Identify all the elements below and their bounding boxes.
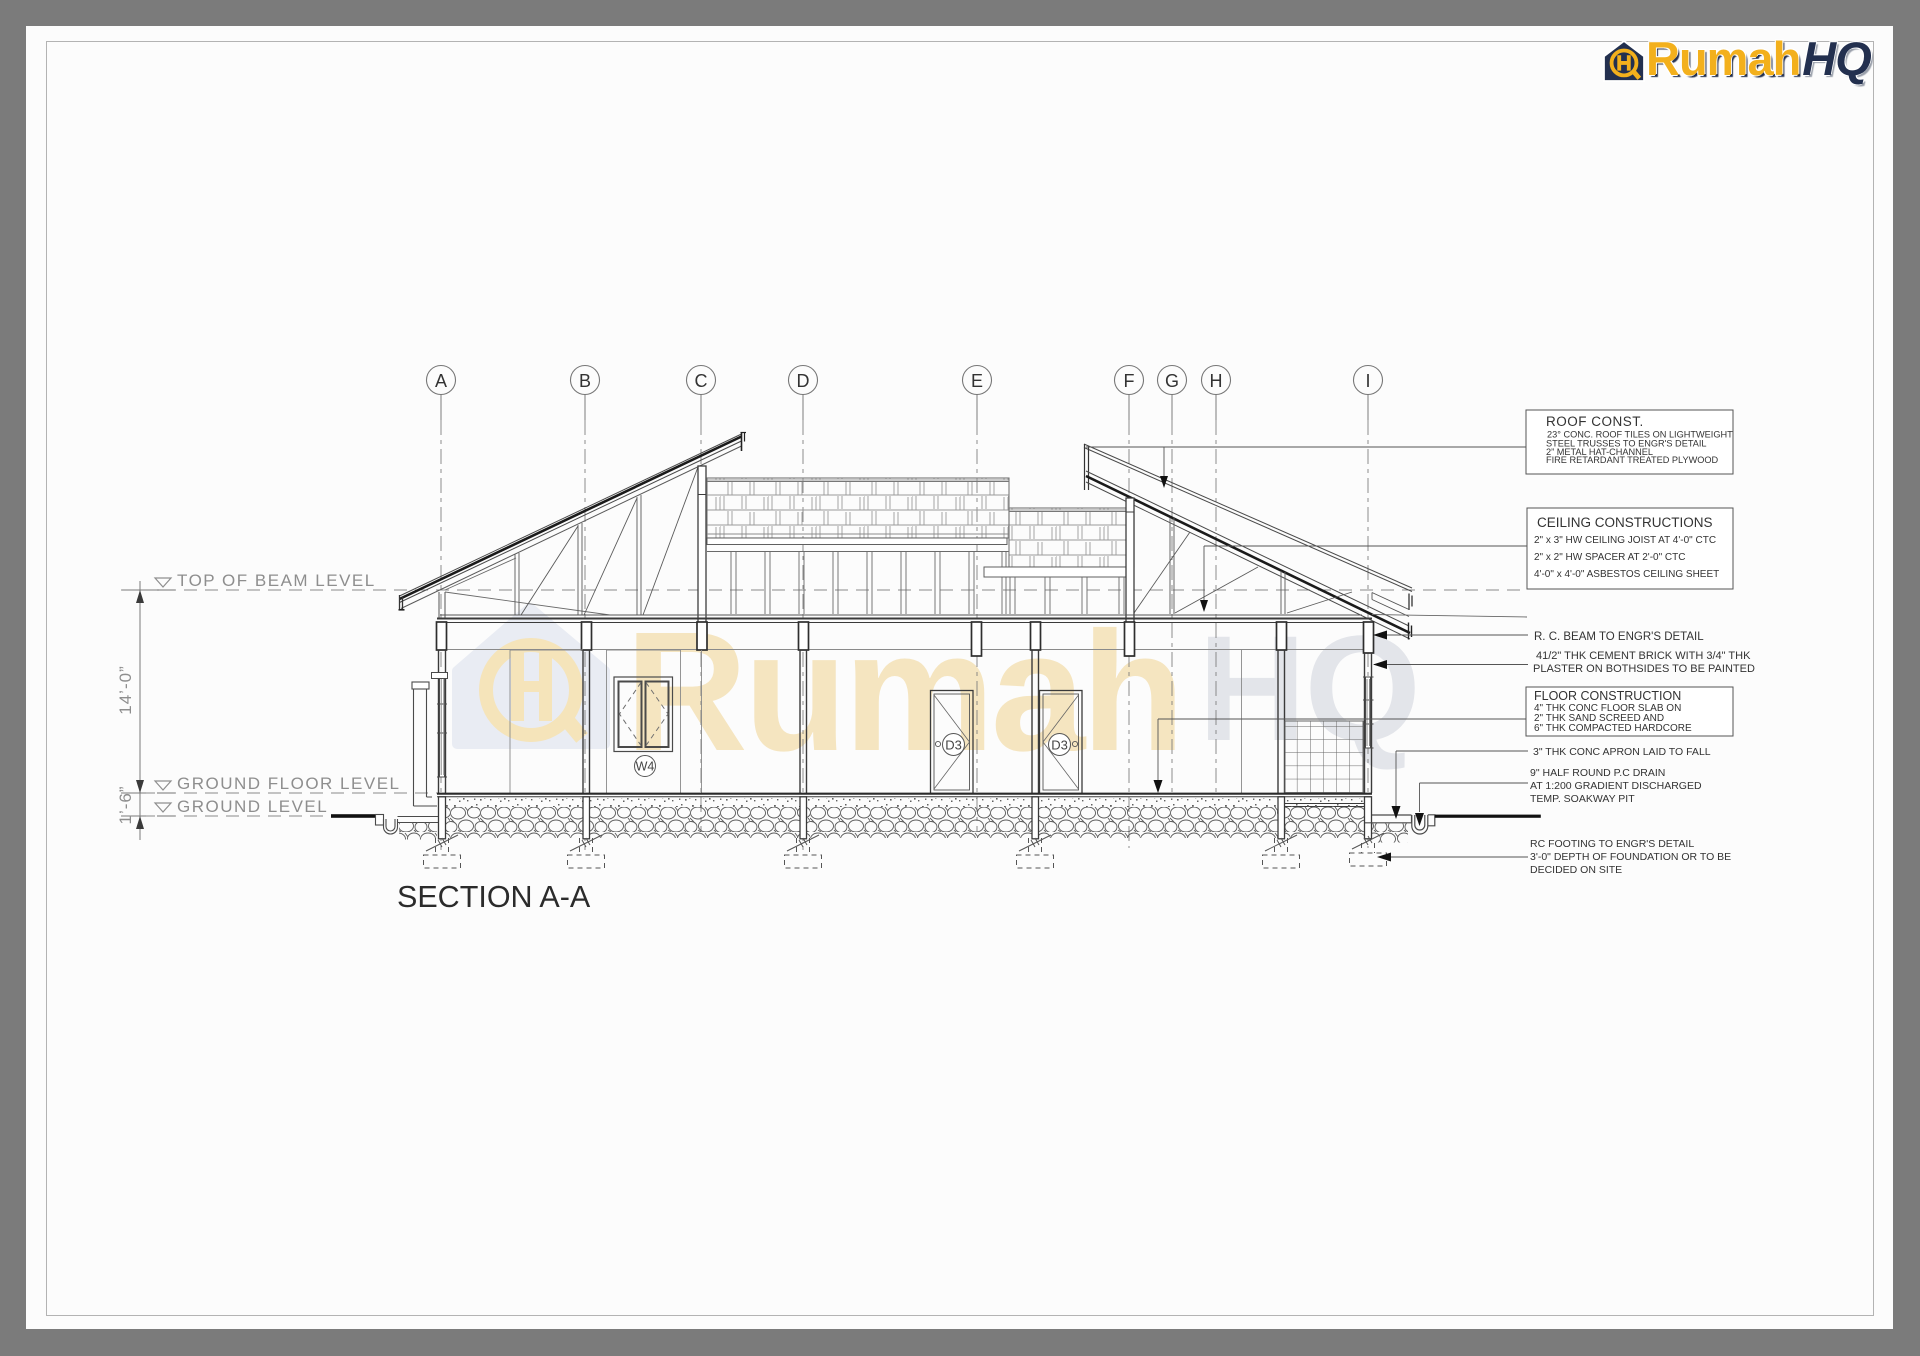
svg-text:D: D [797,371,810,391]
svg-text:CEILING CONSTRUCTIONS: CEILING CONSTRUCTIONS [1537,515,1713,530]
svg-text:6" THK COMPACTED HARDCORE: 6" THK COMPACTED HARDCORE [1534,723,1692,734]
svg-text:FIRE RETARDANT TREATED PLYWOOD: FIRE RETARDANT TREATED PLYWOOD [1546,455,1719,465]
svg-text:R. C. BEAM TO ENGR'S DETAIL: R. C. BEAM TO ENGR'S DETAIL [1534,631,1704,643]
svg-text:E: E [971,371,983,391]
svg-text:3" THK CONC APRON LAID TO FALL: 3" THK CONC APRON LAID TO FALL [1533,746,1711,758]
svg-text:F: F [1124,371,1135,391]
svg-text:W4: W4 [636,760,655,774]
svg-text:GROUND FLOOR LEVEL: GROUND FLOOR LEVEL [177,774,401,793]
svg-text:ROOF CONST.: ROOF CONST. [1546,414,1644,429]
svg-text:2" x 3" HW CEILING JOIST AT 4': 2" x 3" HW CEILING JOIST AT 4'-0" CTC [1534,535,1716,546]
svg-text:3'-0" DEPTH OF FOUNDATION OR T: 3'-0" DEPTH OF FOUNDATION OR TO BE [1530,851,1731,863]
svg-text:PLASTER ON BOTHSIDES TO BE PAI: PLASTER ON BOTHSIDES TO BE PAINTED [1533,663,1755,675]
svg-text:I: I [1365,371,1370,391]
svg-text:14’-0”: 14’-0” [116,665,135,714]
svg-text:FLOOR CONSTRUCTION: FLOOR CONSTRUCTION [1534,689,1681,703]
svg-text:A: A [435,371,447,391]
svg-text:41/2" THK CEMENT BRICK WITH 3/: 41/2" THK CEMENT BRICK WITH 3/4" THK [1536,650,1751,662]
svg-text:TEMP. SOAKWAY PIT: TEMP. SOAKWAY PIT [1530,793,1635,805]
svg-text:D3: D3 [1051,738,1068,753]
svg-text:H: H [1210,371,1223,391]
svg-text:B: B [579,371,591,391]
svg-text:Rumah: Rumah [625,597,1181,787]
svg-text:RC FOOTING TO ENGR'S DETAIL: RC FOOTING TO ENGR'S DETAIL [1530,838,1694,850]
svg-text:1’-6”: 1’-6” [116,785,135,824]
svg-text:G: G [1165,371,1179,391]
svg-text:9" HALF ROUND P.C DRAIN: 9" HALF ROUND P.C DRAIN [1530,767,1665,779]
svg-text:SECTION A-A: SECTION A-A [397,880,591,914]
svg-text:D3: D3 [945,738,962,753]
svg-text:C: C [695,371,708,391]
svg-text:GROUND LEVEL: GROUND LEVEL [177,797,328,816]
svg-text:TOP OF BEAM LEVEL: TOP OF BEAM LEVEL [177,571,376,590]
svg-text:2" x 2" HW SPACER AT 2'-0" CT: 2" x 2" HW SPACER AT 2'-0" CTC [1534,552,1685,563]
svg-text:4'-0" x 4'-0" ASBESTOS CEILING: 4'-0" x 4'-0" ASBESTOS CEILING SHEET [1534,569,1719,580]
svg-text:DECIDED ON SITE: DECIDED ON SITE [1530,864,1622,876]
svg-text:AT 1:200 GRADIENT DISCHARGED: AT 1:200 GRADIENT DISCHARGED [1530,780,1702,792]
